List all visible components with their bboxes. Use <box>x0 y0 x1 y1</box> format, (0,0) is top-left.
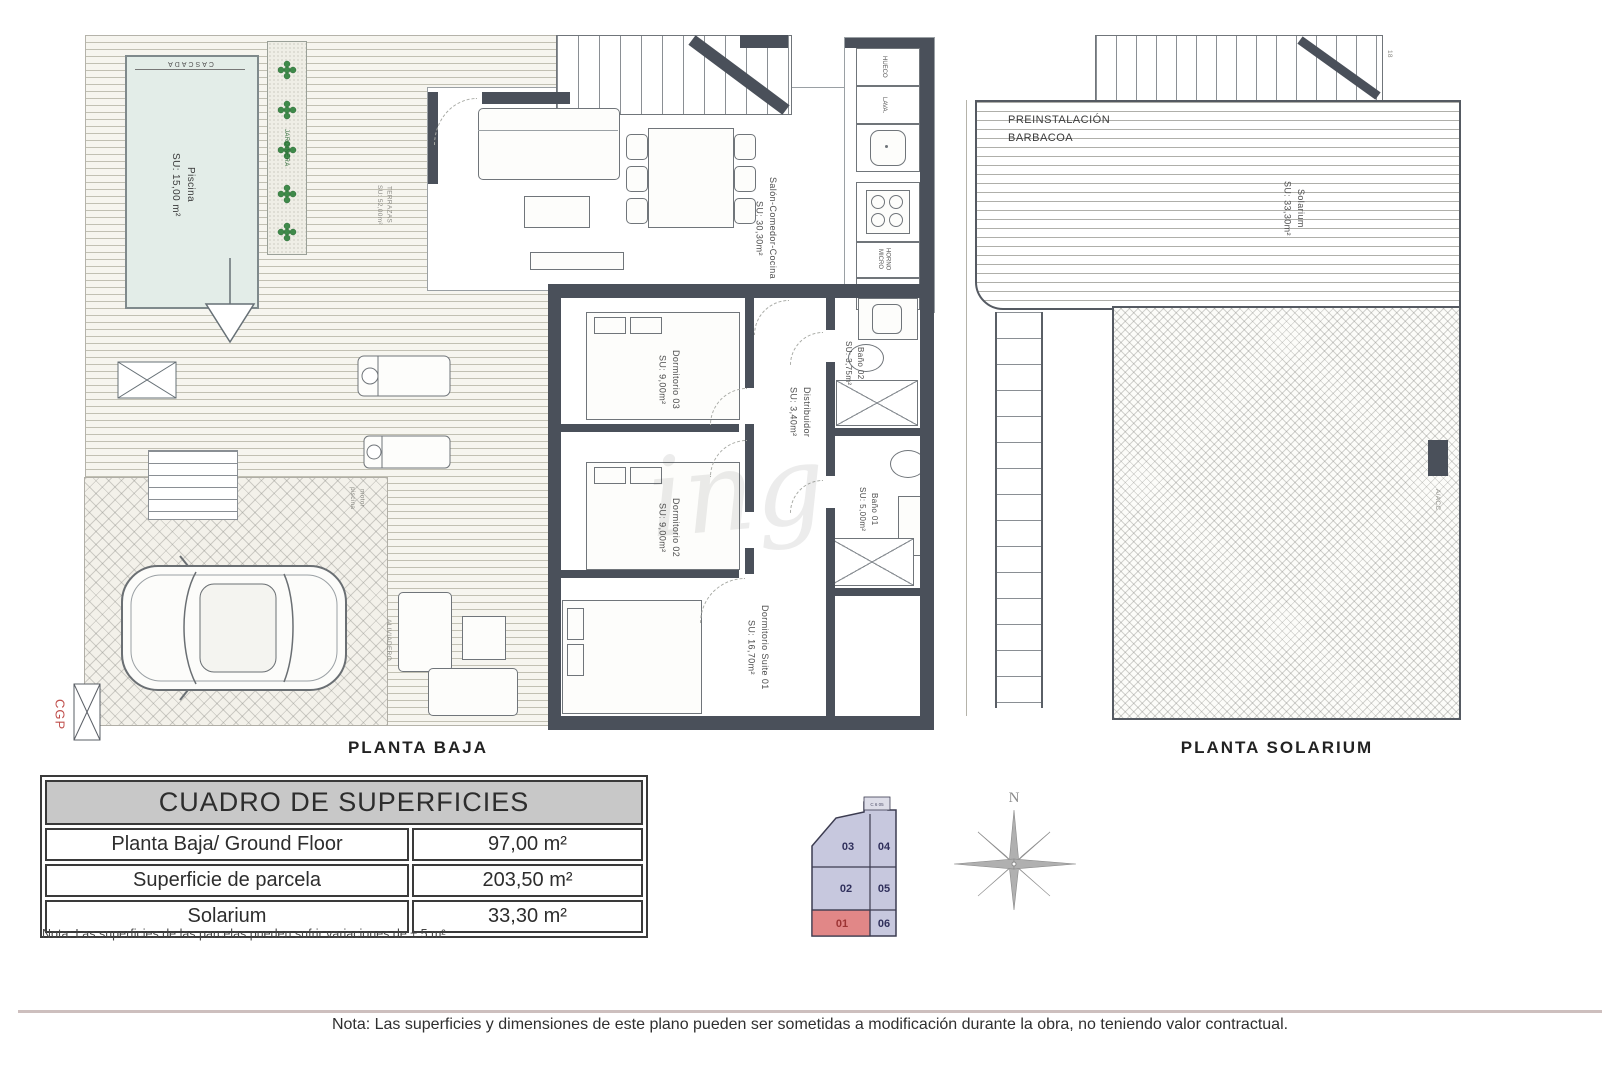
dining-table <box>648 128 734 228</box>
parcel-label: 06 <box>878 918 890 930</box>
kitchen-lava-label: LAVA. <box>880 90 887 120</box>
footer-divider <box>18 1010 1602 1013</box>
chair <box>626 198 648 224</box>
table-row-label: Superficie de parcela <box>45 864 409 897</box>
chair <box>626 166 648 192</box>
burner <box>889 195 903 209</box>
burner <box>871 195 885 209</box>
table-row-label: Planta Baja/ Ground Floor <box>45 828 409 861</box>
wall-segment <box>826 428 934 436</box>
aacc-unit <box>1428 440 1448 476</box>
chair <box>626 134 648 160</box>
kitchen-horno-label: HORNO MICRO <box>876 244 890 274</box>
wall-segment <box>548 716 934 730</box>
pillow <box>594 467 626 484</box>
compass-cardinal-rays <box>954 810 1076 910</box>
distribuidor-label: DistribuidorSU: 3,40m² <box>786 372 813 452</box>
stair-number-label: 18 <box>1384 42 1394 66</box>
sofa <box>478 108 620 180</box>
north-label: N <box>1009 790 1020 806</box>
solarium-stairs-top <box>1095 35 1383 101</box>
aacc-label: A/ACC <box>1432 480 1442 520</box>
table-row: Superficie de parcela 203,50 m² <box>45 864 643 897</box>
parcel-boundary <box>85 725 563 726</box>
table-note: Nota: Las superficies de las parcelas pu… <box>42 927 446 941</box>
pillow <box>630 467 662 484</box>
burner <box>871 213 885 227</box>
cgp-label: CGP <box>50 686 70 744</box>
pillow <box>630 317 662 334</box>
surface-table-title: CUADRO DE SUPERFICIES <box>45 780 643 825</box>
sideboard <box>530 252 624 270</box>
wall-segment <box>482 92 570 104</box>
sofa-cushion-line <box>478 130 618 131</box>
wall-segment <box>745 548 754 574</box>
wall-segment <box>826 298 835 330</box>
wall-segment <box>826 596 835 716</box>
compass-center <box>1012 862 1016 866</box>
wall-segment <box>561 424 739 432</box>
parcel-label-highlighted: 01 <box>836 918 848 930</box>
wall-segment <box>548 284 561 730</box>
parcel-label: 04 <box>878 841 891 853</box>
chair <box>734 134 756 160</box>
parcel-boundary <box>966 100 967 716</box>
pillow <box>567 644 584 676</box>
footer-note: Nota: Las superficies y dimensiones de e… <box>0 1016 1620 1034</box>
outdoor-sofa <box>398 592 452 672</box>
wall-segment <box>920 284 934 730</box>
floor-plan-sheet: CASCADA Piscina SU: 15,00 m² JARDINERA H… <box>0 0 1620 1080</box>
exterior-stairs <box>148 450 238 520</box>
salon-label: Salón-Comedor-CocinaSU: 30,30m² <box>752 168 779 288</box>
outdoor-sofa <box>428 668 518 716</box>
aliviadero-label: ALIVIADERO <box>383 608 393 673</box>
solarium-label: SolariumSU: 33,30m² <box>1280 158 1307 258</box>
solarium-floor <box>1112 306 1461 720</box>
table-row-value: 33,30 m² <box>412 900 643 933</box>
planta-baja-title: PLANTA BAJA <box>318 738 518 758</box>
dormitorio03-label: Dormitorio 03SU: 9,00m² <box>655 340 682 420</box>
compass-rose: N <box>950 780 1080 915</box>
wall-segment <box>548 284 934 298</box>
key-plan: C 6 05 03 04 02 05 01 06 <box>798 768 913 938</box>
parcel-label: 03 <box>842 841 854 853</box>
bano01-label: Baño 01SU: 5,00m² <box>856 478 880 540</box>
interior-stairs <box>556 35 792 115</box>
cascada-label: CASCADA <box>135 60 245 70</box>
preinstalacion-label: PREINSTALACIÓN BARBACOA <box>1008 112 1110 147</box>
pool-label: Piscina SU: 15,00 m² <box>168 120 198 250</box>
bano02-label: Baño 02SU: 3,75m² <box>842 332 866 394</box>
key-plan-corner-label: C 6 05 <box>870 802 884 807</box>
parcel-label: 02 <box>840 883 852 895</box>
wall-segment <box>920 38 934 300</box>
jardinera-label: JARDINERA <box>281 118 290 178</box>
dormitorio02-label: Dormitorio 02SU: 9,00m² <box>655 488 682 568</box>
shower-bano01 <box>830 538 914 586</box>
surface-table: CUADRO DE SUPERFICIES Planta Baja/ Groun… <box>40 775 648 938</box>
sink-drain <box>885 145 888 148</box>
parcel-boundary <box>85 35 563 36</box>
pillow <box>567 608 584 640</box>
wall-segment <box>561 570 739 578</box>
kitchen-hueco-label: HUECO <box>880 52 887 82</box>
kitchen-cell <box>856 86 920 124</box>
basin <box>872 304 902 334</box>
burner <box>889 213 903 227</box>
solarium-stairs-side <box>995 312 1043 708</box>
coffee-table <box>524 196 590 228</box>
pillow <box>594 317 626 334</box>
kitchen-cell <box>856 48 920 86</box>
parcel-label: 05 <box>878 883 890 895</box>
table-row-value: 97,00 m² <box>412 828 643 861</box>
table-row: Planta Baja/ Ground Floor 97,00 m² <box>45 828 643 861</box>
outdoor-table <box>462 616 506 660</box>
motor-piscina-label: motor piscina <box>347 478 367 518</box>
terrazas-label: TERRAZASSU: 52,00m² <box>374 160 394 250</box>
wall-segment <box>826 436 835 476</box>
planta-solarium-title: PLANTA SOLARIUM <box>1177 738 1377 758</box>
wall-segment <box>826 362 835 428</box>
wall-segment <box>745 298 754 388</box>
wall-segment <box>826 508 835 588</box>
suite01-label: Dormitorio Suite 01SU: 16,70m² <box>744 600 771 695</box>
wall-segment <box>826 588 934 596</box>
table-row-value: 203,50 m² <box>412 864 643 897</box>
sink-icon <box>870 130 906 166</box>
